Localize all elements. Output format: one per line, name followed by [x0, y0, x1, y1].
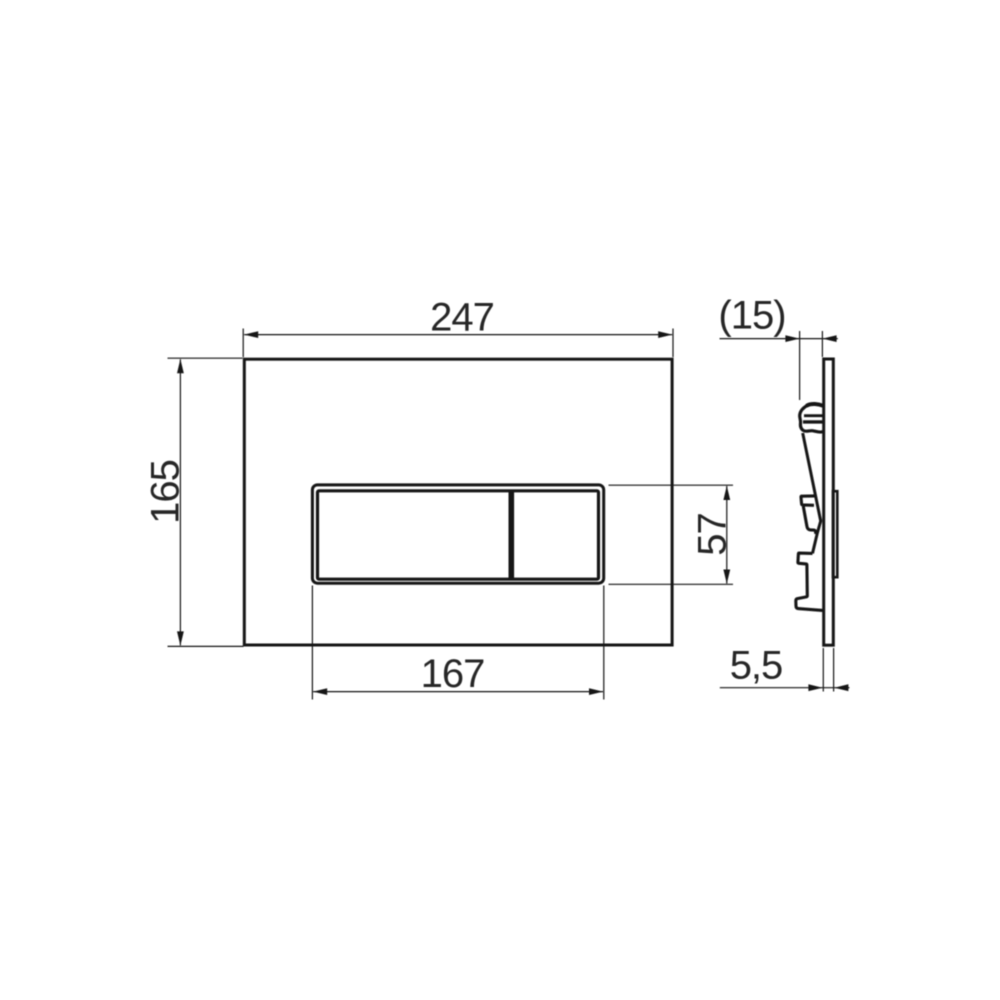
svg-text:167: 167	[421, 652, 485, 696]
svg-text:247: 247	[430, 296, 494, 340]
svg-text:165: 165	[144, 460, 188, 524]
svg-text:(15): (15)	[718, 294, 785, 338]
svg-text:5,5: 5,5	[730, 644, 783, 688]
svg-text:57: 57	[691, 513, 735, 556]
